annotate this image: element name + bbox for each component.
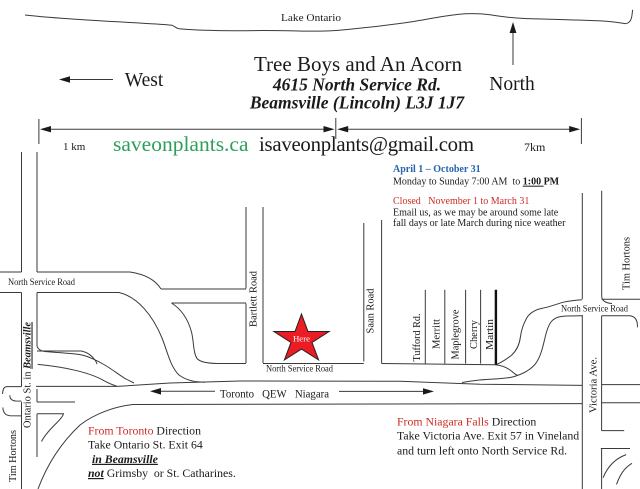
- svg-text:4615 North Service Rd.: 4615 North Service Rd.: [272, 75, 441, 95]
- svg-text:From Niagara Falls Direction: From Niagara Falls Direction: [397, 415, 536, 429]
- svg-text:West: West: [125, 70, 164, 91]
- svg-text:Victoria Ave.: Victoria Ave.: [589, 357, 600, 413]
- svg-text:Tufford Rd.: Tufford Rd.: [412, 314, 423, 362]
- svg-text:Toronto QEW Niagara: Toronto QEW Niagara: [220, 389, 329, 401]
- svg-text:Merritt: Merritt: [431, 319, 442, 349]
- svg-text:in Beamsville: in Beamsville: [92, 452, 158, 466]
- svg-text:Saan Road: Saan Road: [366, 288, 377, 334]
- svg-text:Take Victoria Ave. Exit 57 in: Take Victoria Ave. Exit 57 in Vineland: [397, 429, 579, 443]
- svg-text:Tree Boys and An Acorn: Tree Boys and An Acorn: [254, 52, 463, 76]
- svg-text:not Grimsby or St. Catharines: not Grimsby or St. Catharines.: [88, 466, 236, 480]
- svg-text:isaveonplants@gmail.com: isaveonplants@gmail.com: [259, 133, 474, 156]
- svg-text:Tim Hortons: Tim Hortons: [622, 237, 633, 290]
- svg-text:Take Ontario St. Exit 64: Take Ontario St. Exit 64: [88, 438, 203, 452]
- svg-text:North: North: [489, 74, 535, 95]
- svg-text:Lake Ontario: Lake Ontario: [281, 12, 342, 24]
- svg-text:April 1 – October 31: April 1 – October 31: [393, 164, 481, 175]
- svg-text:saveonplants.ca: saveonplants.ca: [113, 132, 249, 156]
- svg-text:Closed November 1 to March 3: Closed November 1 to March 31: [393, 196, 529, 207]
- svg-text:Beamsville (Lincoln) L3J 1J7: Beamsville (Lincoln) L3J 1J7: [249, 93, 466, 113]
- svg-text:Here: Here: [293, 334, 310, 344]
- svg-text:1 km: 1 km: [63, 141, 86, 153]
- svg-text:Monday to Sunday 7:00 AM to 1: Monday to Sunday 7:00 AM to 1:00 PM: [393, 177, 560, 188]
- svg-text:North Service Road: North Service Road: [561, 305, 628, 315]
- svg-text:and turn left onto North Servi: and turn left onto North Service Rd.: [397, 444, 567, 458]
- svg-text:North Service Road: North Service Road: [266, 365, 333, 375]
- svg-text:Bartlett Road: Bartlett Road: [249, 270, 260, 327]
- svg-text:Ontario St. in Beamsville: Ontario St. in Beamsville: [23, 322, 34, 428]
- svg-text:7km: 7km: [524, 140, 546, 154]
- svg-text:Tim Hortons: Tim Hortons: [8, 430, 19, 482]
- svg-text:Martin: Martin: [485, 318, 496, 350]
- svg-text:Maplegrove: Maplegrove: [451, 309, 462, 359]
- svg-text:North Service Road: North Service Road: [8, 278, 75, 288]
- svg-text:From Toronto Direction: From Toronto Direction: [88, 424, 201, 438]
- svg-text:Cherry: Cherry: [469, 319, 480, 349]
- svg-text:fall days or late March during: fall days or late March during nice weat…: [393, 218, 566, 229]
